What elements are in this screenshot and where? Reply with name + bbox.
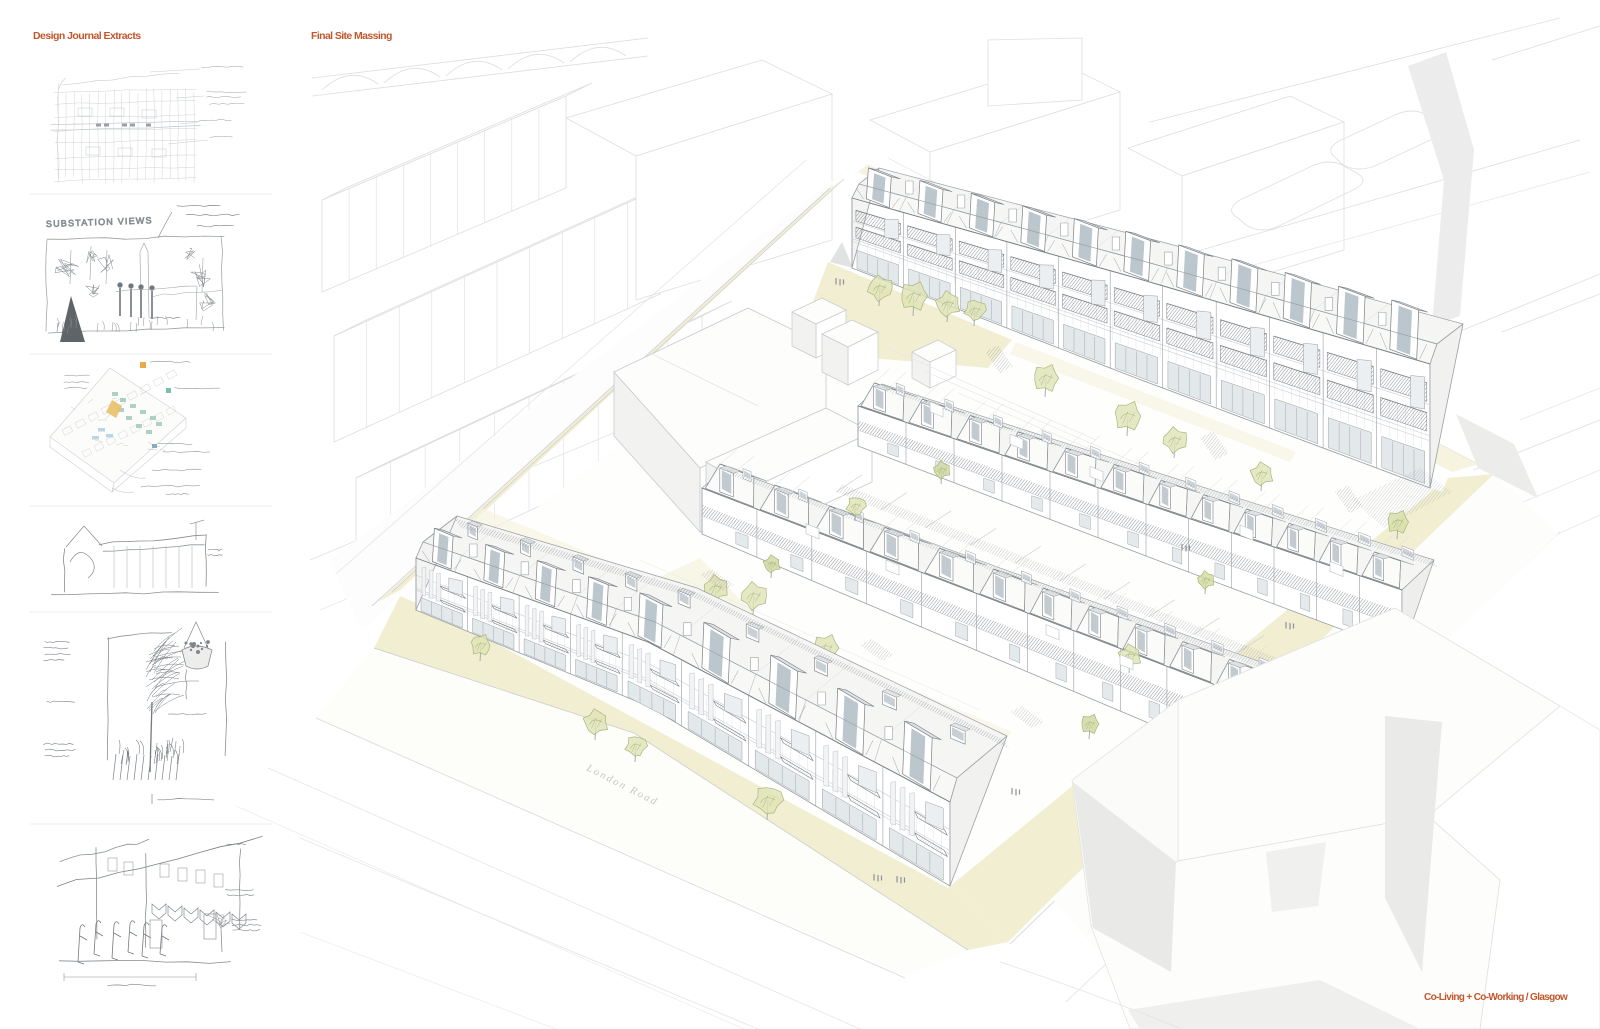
svg-text:SUBSTATION VIEWS: SUBSTATION VIEWS — [46, 215, 153, 229]
